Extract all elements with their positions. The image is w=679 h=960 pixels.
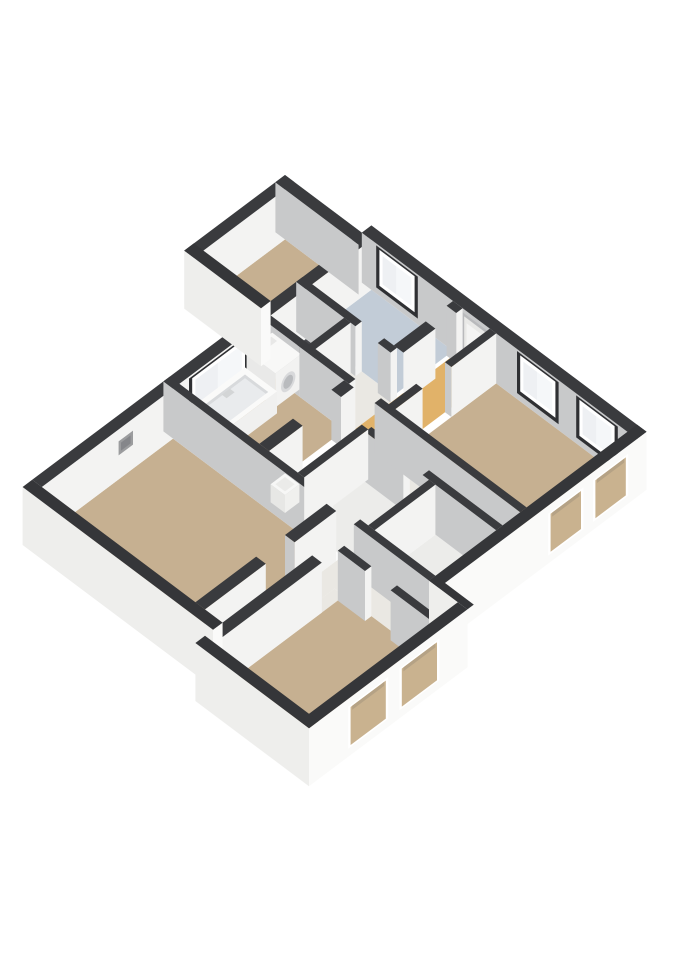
wall-bedroomright-nw-end — [445, 362, 451, 417]
wall-void-blue-end — [355, 321, 361, 376]
floorplan-3d-page — [0, 0, 679, 960]
wall-bath-se-end — [331, 390, 341, 447]
wall-bedroombottom-ne-end — [365, 566, 371, 621]
wall-void-blue-face — [378, 343, 391, 403]
wall-toproom-sw-end — [261, 301, 271, 366]
wall-blue-se-end — [447, 306, 457, 363]
floorplan-3d-render — [0, 0, 679, 960]
wall-void-blue-end — [391, 348, 397, 403]
